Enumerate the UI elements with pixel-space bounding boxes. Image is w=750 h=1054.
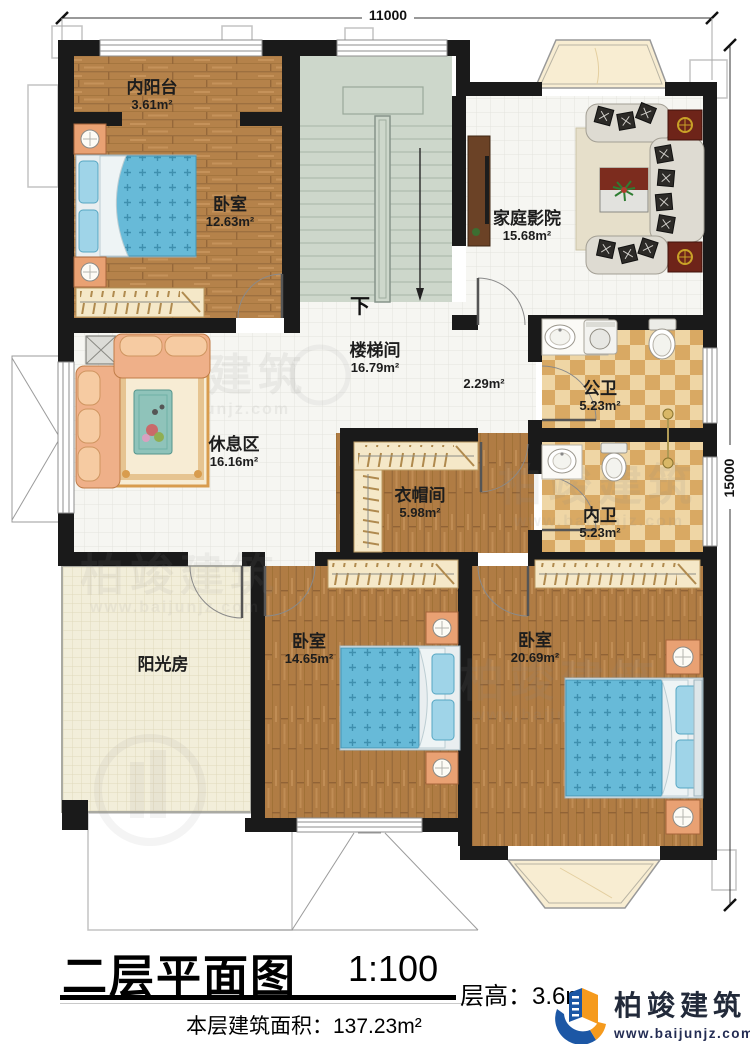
room-label-public-bath: 公卫 [583, 379, 617, 398]
room-area-hall: 2.29m² [463, 376, 505, 391]
bed [565, 678, 703, 798]
floorplan-page: 下 柏竣建筑 www.baijunjz.com 柏竣建筑 www.baijunj… [0, 0, 750, 1054]
sink [545, 325, 575, 349]
corner-cabinet [668, 110, 702, 140]
coffee-table [600, 168, 648, 212]
window-stair-top [337, 40, 447, 56]
nightstand [666, 640, 700, 674]
sink [548, 449, 576, 473]
wardrobe [535, 560, 700, 588]
nightstand [426, 612, 458, 644]
title-block: 二层平面图 1:100 层高：3.6m 本层建筑面积：137.23m² 柏竣建筑… [0, 938, 750, 1054]
title-underline [60, 995, 456, 1000]
toilet [601, 443, 627, 481]
room-area-public-bath: 5.23m² [579, 398, 621, 413]
room-area-bedroom1: 12.63m² [206, 214, 255, 229]
window-private-bath [703, 457, 717, 546]
room-label-balcony: 内阳台 [127, 77, 178, 97]
room-area-private-bath: 5.23m² [579, 525, 621, 540]
floorplan-drawing: 下 柏竣建筑 www.baijunjz.com 柏竣建筑 www.baijunj… [0, 0, 750, 940]
toilet [649, 319, 676, 359]
room-label-sunroom: 阳光房 [138, 654, 189, 674]
stair-down-label: 下 [350, 296, 370, 318]
dimension-right-value: 15000 [721, 458, 737, 497]
room-label-private-bath: 内卫 [583, 505, 617, 525]
brand-name: 柏竣建筑 [614, 984, 750, 1024]
room-label-theater: 家庭影院 [493, 208, 561, 228]
lounge-furniture [76, 334, 210, 488]
closet-top [354, 442, 478, 470]
watermark-url: www.baijunjz.com [89, 599, 260, 616]
room-label-stairwell: 楼梯间 [350, 340, 401, 360]
window-balcony-top [100, 40, 262, 56]
brand-logo: 柏竣建筑 www.baijunjz.com [552, 982, 742, 1048]
nightstand [666, 800, 700, 834]
room-area-bedroom3: 20.69m² [511, 650, 560, 665]
wardrobe [76, 288, 204, 317]
room-area-bedroom2: 14.65m² [285, 651, 334, 666]
coffee-table [134, 390, 172, 454]
floor-area-label: 本层建筑面积： [186, 1015, 333, 1038]
bay-window-top [535, 40, 668, 88]
floor-area-value: 137.23m² [333, 1015, 422, 1038]
title-underline-thin [60, 1003, 470, 1004]
floor-area: 本层建筑面积：137.23m² [186, 1010, 422, 1040]
wardrobe [328, 560, 458, 588]
watermark-text: 柏竣建筑 [80, 551, 280, 600]
nightstand [74, 257, 106, 287]
room-label-bedroom2: 卧室 [292, 631, 326, 651]
window-bedroom2-bottom [297, 818, 422, 832]
bed [76, 155, 196, 257]
room-label-bedroom1: 卧室 [213, 194, 247, 214]
room-area-stairwell: 16.79m² [351, 360, 400, 375]
room-area-theater: 15.68m² [503, 228, 552, 243]
room-label-lounge: 休息区 [208, 434, 260, 454]
corner-table [86, 336, 116, 364]
window-lounge-left [58, 362, 74, 513]
corner-cabinet [668, 242, 702, 272]
nightstand [426, 752, 458, 784]
room-area-balcony: 3.61m² [131, 97, 173, 112]
dimension-top-value: 11000 [369, 7, 407, 23]
bed [340, 646, 460, 750]
room-label-bedroom3: 卧室 [518, 630, 552, 650]
room-area-cloakroom: 5.98m² [399, 505, 441, 520]
brand-logo-icon [552, 982, 610, 1044]
washing-machine [584, 320, 617, 354]
nightstand [74, 124, 106, 154]
room-label-cloakroom: 衣帽间 [395, 485, 446, 505]
closet-left [354, 470, 382, 552]
brand-website: www.baijunjz.com [614, 1026, 750, 1041]
plan-scale: 1:100 [348, 948, 438, 990]
window-public-bath [703, 348, 717, 423]
tv-cabinet [468, 136, 490, 246]
room-area-lounge: 16.16m² [210, 454, 259, 469]
left-bay-window [12, 356, 62, 522]
